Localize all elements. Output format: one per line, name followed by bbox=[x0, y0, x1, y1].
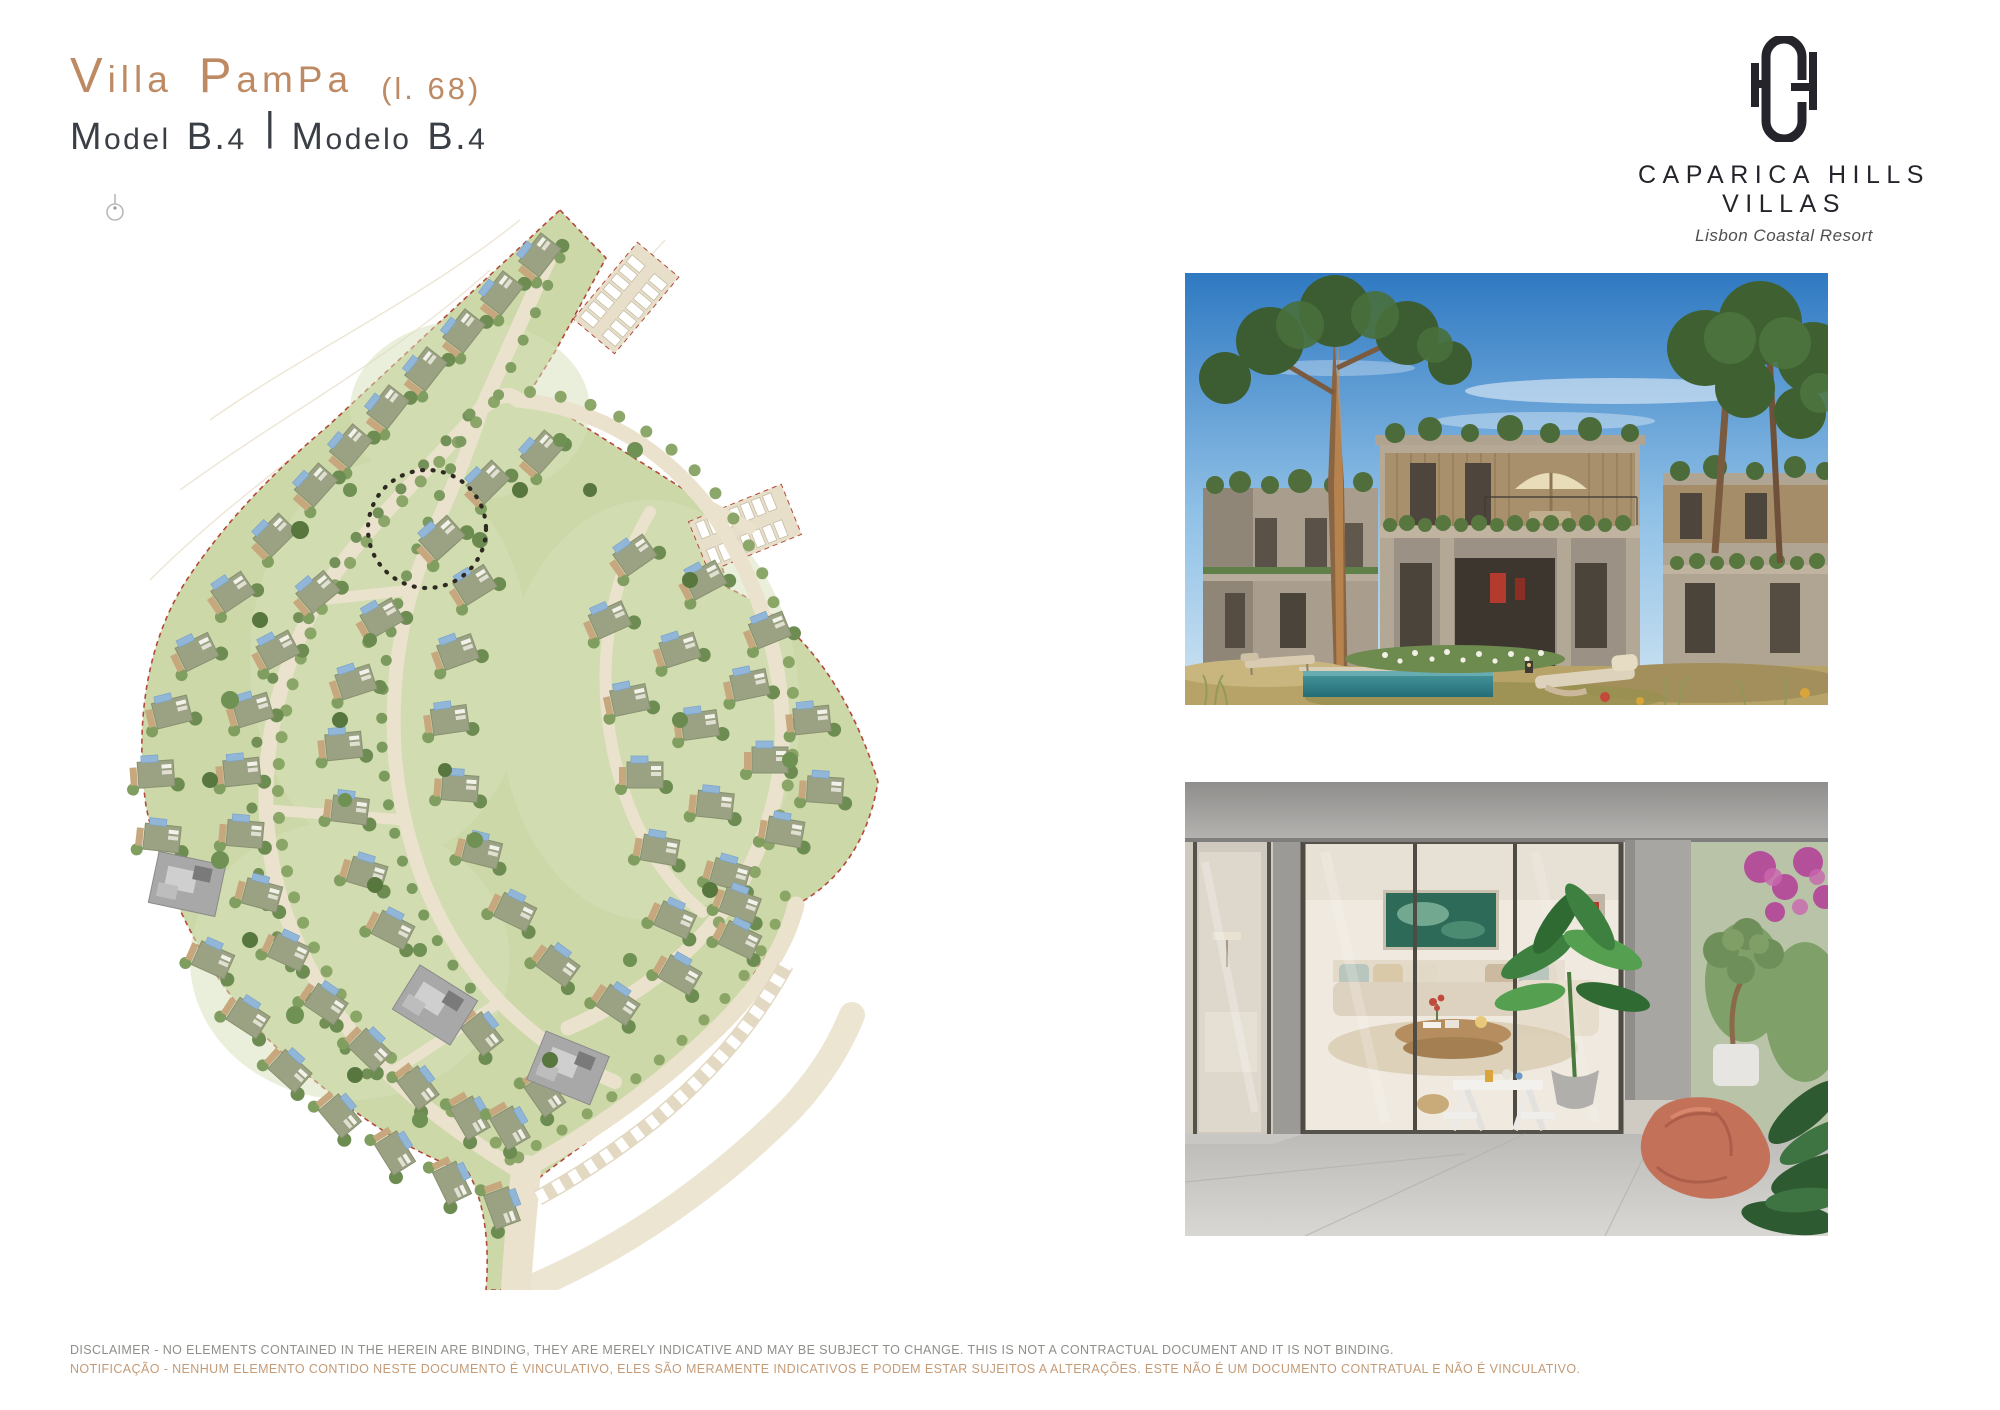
disclaimer-pt: NOTIFICAÇÃO - NENHUM ELEMENTO CONTIDO NE… bbox=[70, 1361, 1580, 1378]
disclaimer-en: DISCLAIMER - NO ELEMENTS CONTAINED IN TH… bbox=[70, 1342, 1580, 1359]
exterior-rendering-image bbox=[1185, 273, 1828, 705]
brochure-page: VillaPamPa(l. 68) ModelB.4|ModeloB.4 HCH… bbox=[0, 0, 2000, 1410]
model-subtitle: ModelB.4|ModeloB.4 bbox=[70, 114, 503, 159]
brand-block: HCH CAPARICA HILLS VILLAS Lisbon Coastal… bbox=[1614, 36, 1954, 246]
header: VillaPamPa(l. 68) ModelB.4|ModeloB.4 bbox=[70, 48, 503, 159]
model-value-en: B.4 bbox=[187, 116, 247, 159]
interior-rendering-image bbox=[1185, 782, 1828, 1236]
villa-name-word: Villa bbox=[70, 48, 173, 104]
north-arrow-icon bbox=[107, 194, 123, 220]
disclaimer-block: DISCLAIMER - NO ELEMENTS CONTAINED IN TH… bbox=[70, 1342, 1580, 1378]
brand-name: CAPARICA HILLS VILLAS bbox=[1614, 161, 1954, 219]
hch-monogram-icon bbox=[1751, 36, 1817, 142]
brand-tagline: Lisbon Coastal Resort bbox=[1614, 226, 1954, 246]
masterplan-map bbox=[90, 160, 930, 1290]
villa-name-word: PamPa bbox=[199, 48, 353, 104]
model-label-pt: Modelo bbox=[292, 116, 412, 159]
separator-bar: | bbox=[265, 105, 278, 150]
lot-number: (l. 68) bbox=[381, 71, 481, 107]
model-value-pt: B.4 bbox=[427, 116, 487, 159]
page-title: VillaPamPa(l. 68) bbox=[70, 48, 503, 104]
model-label-en: Model bbox=[70, 116, 171, 159]
